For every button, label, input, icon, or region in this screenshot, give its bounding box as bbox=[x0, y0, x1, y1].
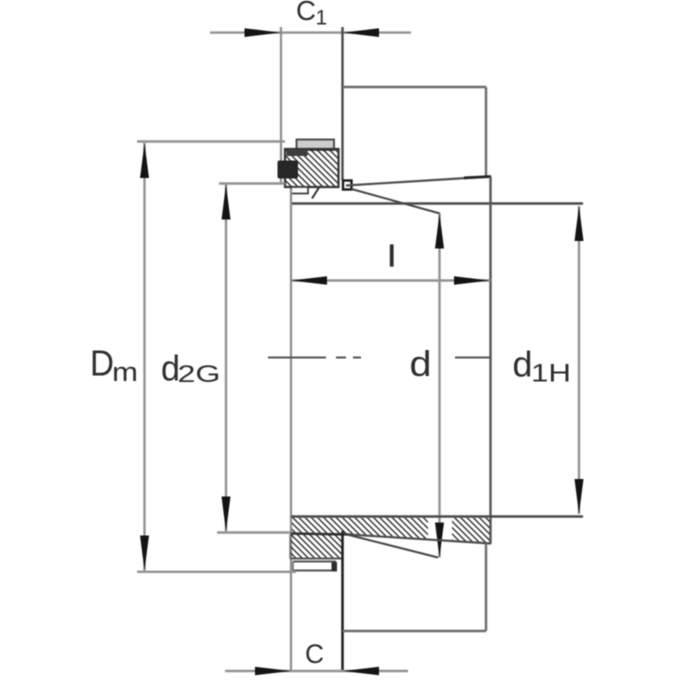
svg-text:1H: 1H bbox=[531, 360, 571, 388]
svg-text:m: m bbox=[112, 357, 138, 387]
svg-text:d: d bbox=[513, 344, 533, 385]
svg-text:l: l bbox=[389, 241, 395, 273]
svg-text:1: 1 bbox=[316, 7, 328, 30]
svg-text:d: d bbox=[410, 343, 432, 384]
svg-text:2G: 2G bbox=[178, 361, 221, 388]
svg-text:C: C bbox=[296, 0, 316, 26]
svg-text:C: C bbox=[305, 639, 324, 669]
svg-text:D: D bbox=[90, 343, 114, 384]
